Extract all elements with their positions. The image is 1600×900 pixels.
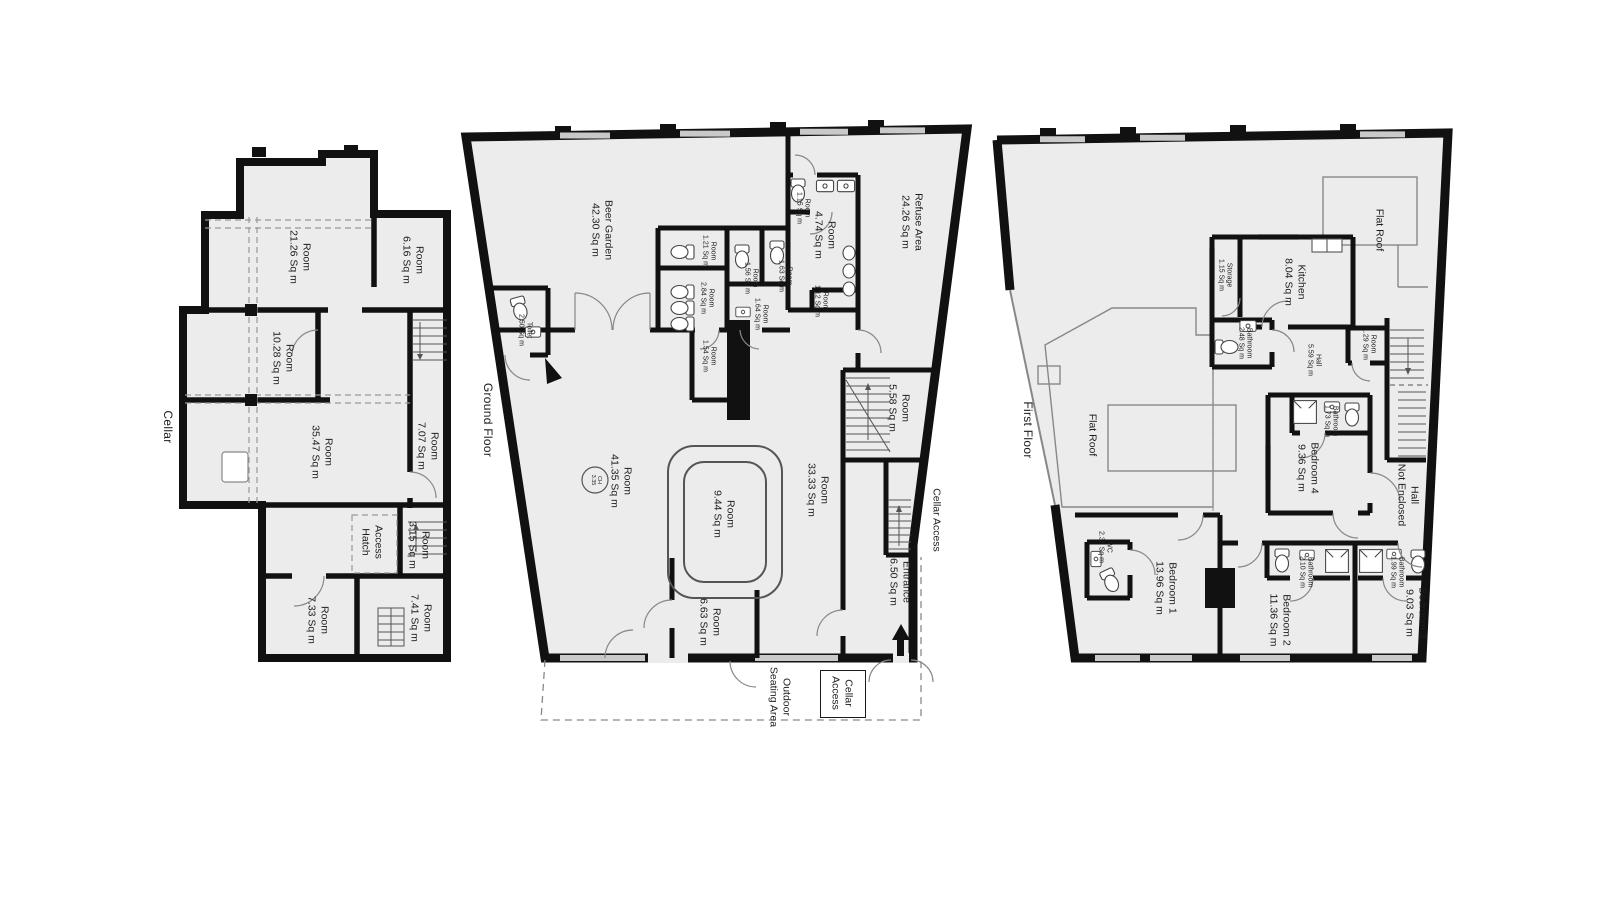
hall-not-enclosed-label: HallNot Enclosed <box>1395 464 1420 526</box>
first-floor-plan <box>997 124 1448 658</box>
first-floor-label: First Floor <box>1021 401 1035 458</box>
room-1-29-label: Room1.29 Sq m <box>1360 328 1377 360</box>
bathroom-1-73-label: Bathroom1.73 Sq m <box>1322 405 1339 437</box>
cellar-floor-label: Cellar <box>161 410 175 443</box>
wc-2-36-label: WC2.36 Sq m <box>1096 531 1113 563</box>
cellar-room-35-47-label: Room35.47 Sq m <box>309 425 334 479</box>
room-1-63-label: Room1.63 Sq m <box>776 260 793 292</box>
kitchen-label: Kitchen8.04 Sq m <box>1282 258 1307 306</box>
bedroom-4-label: Bedroom 49.36 Sq m <box>1295 442 1320 493</box>
outdoor-seating-label: OutdoorSeating Area <box>767 667 792 727</box>
beer-garden-label: Beer Garden42.30 Sq m <box>589 200 614 260</box>
floorplan-graphics <box>0 0 1600 900</box>
bathroom-1-99-label: Bathroom1.99 Sq m <box>1388 556 1405 588</box>
hall-5-59-label: Hall5.59 Sq m <box>1305 344 1322 376</box>
room-9-44-label: Room9.44 Sq m <box>711 490 736 538</box>
bedroom-2-label: Bedroom 211.36 Sq m <box>1267 594 1292 647</box>
flat-roof-left-label: Flat Roof <box>1086 414 1099 457</box>
room-33-33-label: Room33.33 Sq m <box>805 463 830 517</box>
room-2-84-label: Room2.84 Sq m <box>698 282 715 314</box>
bathroom-2-48-label: Bathroom2.48 Sq m <box>1236 327 1253 359</box>
entrance-label: Entrance6.50 Sq m <box>887 558 912 606</box>
cellar-access-side-label: Cellar Access <box>930 488 943 552</box>
floorplan-page: Cellar Room21.26 Sq m Room6.16 Sq m Room… <box>0 0 1600 900</box>
bedroom-3-label: Bedroom 39.03 Sq m <box>1403 587 1428 638</box>
cellar-access-hatch-label: AccessHatch <box>359 525 384 559</box>
room-4-74-label: Room4.74 Sq m <box>812 211 837 259</box>
room-1-54-label: Room1.54 Sq m <box>700 340 717 372</box>
cellar-plan <box>183 145 447 658</box>
room-1-56-label: Room1.56 Sq m <box>742 262 759 294</box>
storage-label: Storage1.15 Sq m <box>1216 259 1233 291</box>
room-1-12-label: Room1.12 Sq m <box>812 285 829 317</box>
room-41-35-label: Room41.35 Sq m <box>608 454 633 508</box>
room-6-63-label: Room6.63 Sq m <box>697 598 722 646</box>
toilet-label: Toilet2.50 Sq m <box>516 314 533 346</box>
cellar-room-10-28-label: Room10.28 Sq m <box>270 331 295 385</box>
cellar-room-7-07-label: Room7.07 Sq m <box>415 422 440 470</box>
room-1-21-label: Room1.21 Sq m <box>700 235 717 267</box>
cellar-room-6-16-label: Room6.16 Sq m <box>400 236 425 284</box>
cellar-room-3-15-label: Room3.15 Sq m <box>406 521 431 569</box>
cellar-room-7-41-label: Room7.41 Sq m <box>408 594 433 642</box>
ceiling-height-label: CH3.35 <box>589 475 601 486</box>
bedroom-1-label: Bedroom 113.96 Sq m <box>1153 561 1178 615</box>
cellar-room-7-33-label: Room7.33 Sq m <box>305 596 330 644</box>
room-1-15-label: Room1.15 Sq m <box>794 192 811 224</box>
cellar-access-box-label: CellarAccess <box>829 676 854 710</box>
refuse-area-label: Refuse Area24.26 Sq m <box>899 193 924 251</box>
flat-roof-top-label: Flat Roof <box>1373 209 1386 252</box>
ground-floor-label: Ground Floor <box>481 383 495 457</box>
bathroom-2-10-label: Bathroom2.10 Sq m <box>1297 556 1314 588</box>
room-5-58-label: Room5.58 Sq m <box>886 384 911 432</box>
room-1-64-label: Room1.64 Sq m <box>752 298 769 330</box>
cellar-room-21-26-label: Room21.26 Sq m <box>287 230 312 284</box>
